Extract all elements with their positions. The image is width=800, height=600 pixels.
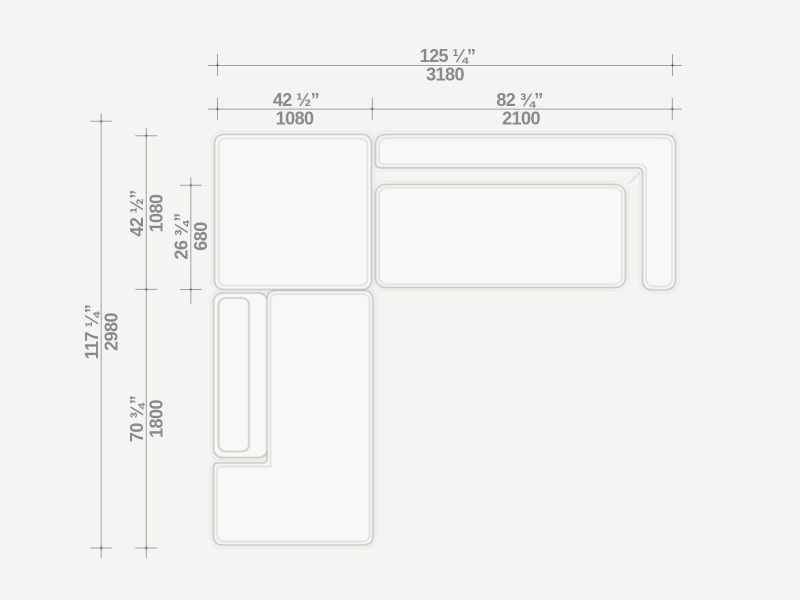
svg-text:1080: 1080: [276, 109, 314, 129]
svg-text:42 ½”: 42 ½”: [273, 90, 319, 110]
svg-text:680: 680: [191, 222, 211, 251]
svg-text:42 ½”: 42 ½”: [127, 190, 147, 236]
svg-text:2100: 2100: [502, 109, 540, 129]
svg-text:2980: 2980: [102, 313, 122, 351]
svg-text:26 ¾”: 26 ¾”: [172, 213, 192, 259]
svg-text:3180: 3180: [426, 65, 464, 85]
svg-text:82 ¾”: 82 ¾”: [496, 90, 542, 110]
svg-text:70 ¾”: 70 ¾”: [127, 396, 147, 442]
svg-text:117 ¼”: 117 ¼”: [82, 305, 102, 360]
svg-text:1080: 1080: [147, 194, 167, 232]
svg-text:1800: 1800: [147, 400, 167, 438]
svg-text:125 ¼”: 125 ¼”: [420, 46, 476, 66]
